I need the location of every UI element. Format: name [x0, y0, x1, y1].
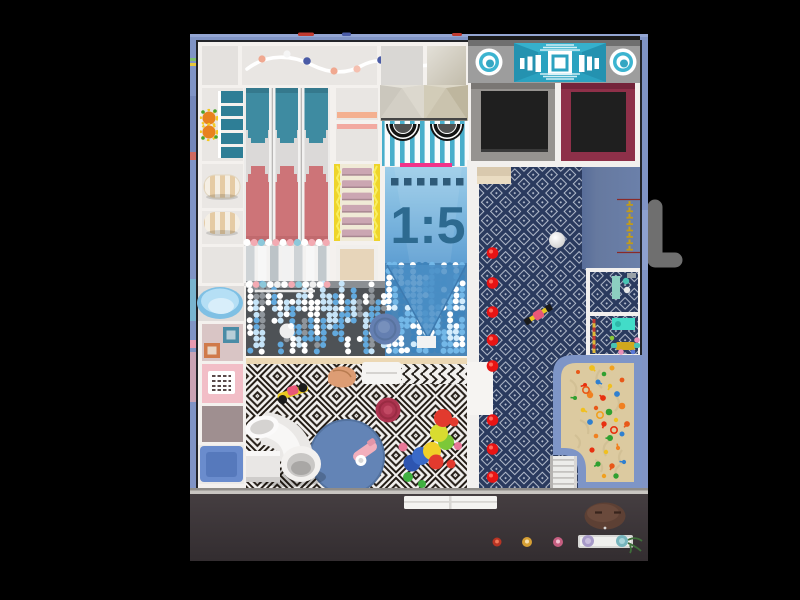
- svg-text:1:5: 1:5: [390, 197, 465, 255]
